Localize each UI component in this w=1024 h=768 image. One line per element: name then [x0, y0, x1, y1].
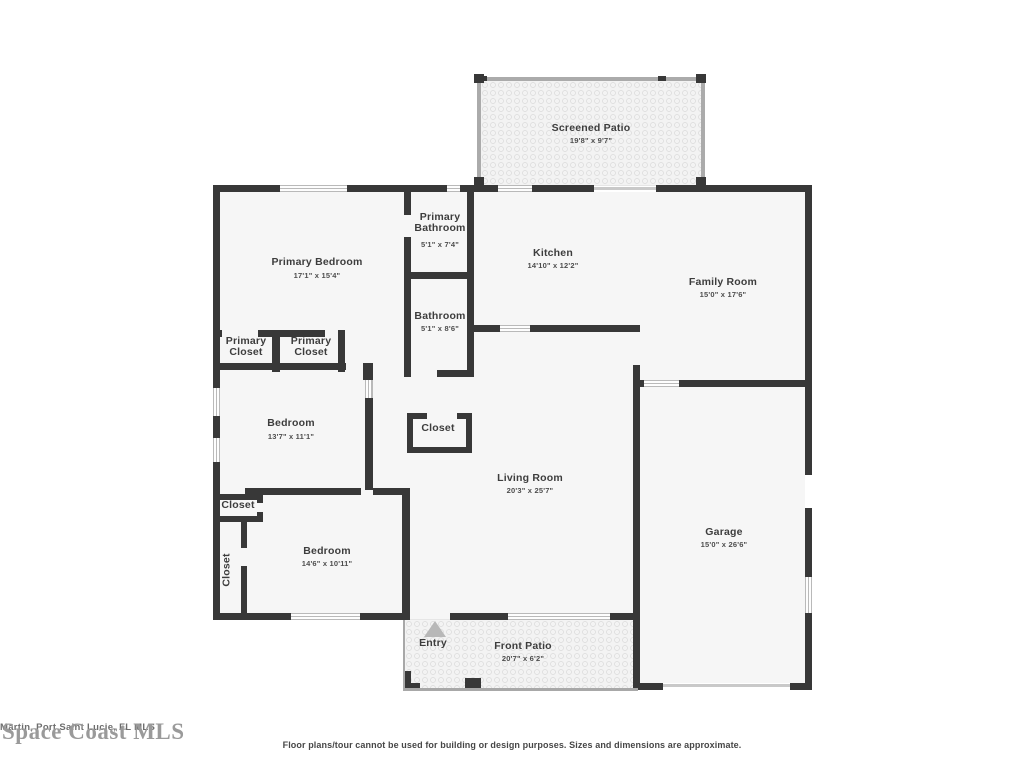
room-label-living-room: Living Room: [497, 473, 563, 484]
patio-post: [480, 76, 487, 81]
room-dims-bedroom-2: 14'6" x 10'11": [302, 559, 353, 568]
room-dims-garage: 15'0" x 26'6": [701, 540, 748, 549]
room-dims-family-room: 15'0" x 17'6": [700, 290, 747, 299]
wall-segment: [213, 185, 220, 388]
wall-segment: [407, 447, 472, 453]
wall-segment: [640, 683, 663, 690]
room-label-closet-vertical: Closet: [222, 553, 233, 586]
wall-segment: [404, 279, 411, 377]
wall-segment: [347, 185, 447, 192]
wall-segment: [633, 380, 640, 690]
wall-segment: [467, 325, 500, 332]
room-label-bathroom: Bathroom: [414, 311, 465, 322]
room-label-bedroom-2: Bedroom: [303, 546, 351, 557]
screen-wall: [477, 77, 705, 81]
room-dims-kitchen: 14'10" x 12'2": [527, 261, 578, 270]
wall-segment: [257, 494, 263, 503]
wall-segment: [656, 185, 812, 192]
window: [447, 185, 460, 192]
patio-post: [658, 76, 666, 81]
wall-segment: [213, 363, 346, 370]
wall-segment: [530, 325, 640, 332]
room-dims-bedroom-1: 13'7" x 11'1": [268, 432, 314, 441]
wall-segment: [805, 613, 812, 690]
room-label-bedroom-1: Bedroom: [267, 418, 315, 429]
wall-segment: [805, 185, 812, 475]
wall-segment: [679, 380, 812, 387]
room-label-family-room: Family Room: [689, 277, 757, 288]
window: [213, 438, 220, 462]
room-label-primary-bedroom: Primary Bedroom: [271, 257, 362, 268]
window: [291, 613, 360, 620]
disclaimer-text: Floor plans/tour cannot be used for buil…: [283, 740, 742, 750]
wall-segment: [363, 363, 373, 380]
wall-segment: [402, 488, 410, 620]
room-label-primary-closet-2: Primary Closet: [285, 336, 337, 358]
wall-segment: [805, 508, 812, 577]
wall-segment: [213, 462, 220, 620]
wall-segment: [407, 413, 427, 419]
wall-segment: [790, 683, 812, 690]
screen-wall: [477, 77, 481, 185]
patio-edge: [403, 688, 638, 691]
watermark-mls-large: Space Coast MLS: [2, 719, 185, 745]
room-dims-primary-bathroom: 5'1" x 7'4": [421, 240, 459, 249]
wall-segment: [213, 613, 291, 620]
room-dims-front-patio: 20'7" x 6'2": [502, 654, 544, 663]
room-label-screened-patio: Screened Patio: [552, 123, 631, 134]
entry-arrow-icon: [424, 621, 446, 637]
room-label-closet-center: Closet: [421, 423, 454, 434]
floor-entry-threshold: [407, 613, 450, 620]
patio-post: [405, 683, 420, 688]
room-label-entry: Entry: [419, 638, 447, 649]
window: [498, 185, 532, 192]
room-label-kitchen: Kitchen: [533, 248, 573, 259]
wall-segment: [365, 398, 373, 490]
room-dims-bathroom: 5'1" x 8'6": [421, 324, 459, 333]
window: [500, 325, 530, 332]
wall-segment: [404, 272, 474, 279]
wall-segment: [532, 185, 594, 192]
wall-segment: [460, 185, 498, 192]
window: [280, 185, 347, 192]
sliding-door: [594, 187, 656, 190]
wall-segment: [450, 613, 508, 620]
window: [213, 388, 220, 416]
window: [365, 380, 373, 398]
wall-segment: [404, 185, 411, 215]
wall-segment: [241, 566, 247, 613]
room-dims-living-room: 20'3" x 25'7": [507, 486, 554, 495]
room-dims-screened-patio: 19'8" x 9'7": [570, 136, 612, 145]
wall-segment: [213, 516, 262, 522]
wall-segment: [213, 185, 280, 192]
room-label-closet-small: Closet: [221, 500, 254, 511]
patio-post: [696, 74, 706, 83]
patio-post: [465, 678, 481, 688]
window: [644, 380, 679, 387]
window: [508, 613, 610, 620]
room-label-garage: Garage: [705, 527, 742, 538]
room-label-primary-closet-1: Primary Closet: [220, 336, 272, 358]
wall-segment: [241, 522, 247, 548]
screen-wall: [701, 77, 705, 185]
garage-door: [663, 684, 790, 687]
floor-plan-canvas: Screened Patio 19'8" x 9'7" Primary Bedr…: [0, 0, 1024, 768]
wall-segment: [373, 488, 402, 495]
wall-segment: [213, 416, 220, 438]
room-label-front-patio: Front Patio: [494, 641, 552, 652]
window: [805, 577, 812, 613]
room-dims-primary-bedroom: 17'1" x 15'4": [294, 271, 341, 280]
room-label-primary-bathroom: Primary Bathroom: [410, 212, 470, 234]
